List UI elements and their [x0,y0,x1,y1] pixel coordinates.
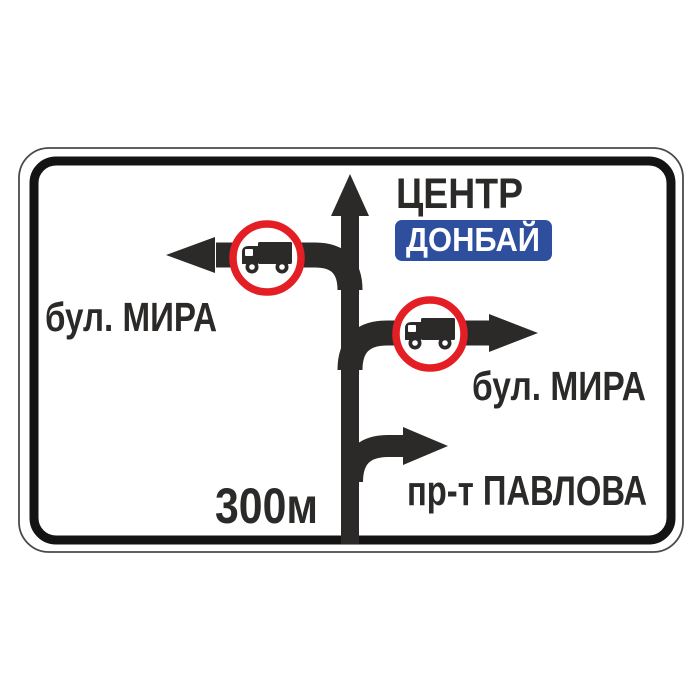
road-sign-illustration: ЦЕНТР ДОНБАЙ бул. МИРА бул. МИРА пр-т ПА… [0,0,700,700]
slight-right-street-label: пр-т ПАВЛОВА [407,467,647,514]
direction-sign-canvas: ЦЕНТР ДОНБАЙ бул. МИРА бул. МИРА пр-т ПА… [0,0,700,700]
left-street-label: бул. МИРА [45,294,217,340]
distance-label: 300м [215,478,318,534]
straight-destination-label: ЦЕНТР [396,170,523,218]
city-name-plate: ДОНБАЙ [395,220,552,261]
no-trucks-prohibition-sign-right [396,300,464,368]
no-trucks-prohibition-sign-left [233,224,301,292]
city-name-label: ДОНБАЙ [406,220,540,258]
right-street-label: бул. МИРА [472,363,646,409]
